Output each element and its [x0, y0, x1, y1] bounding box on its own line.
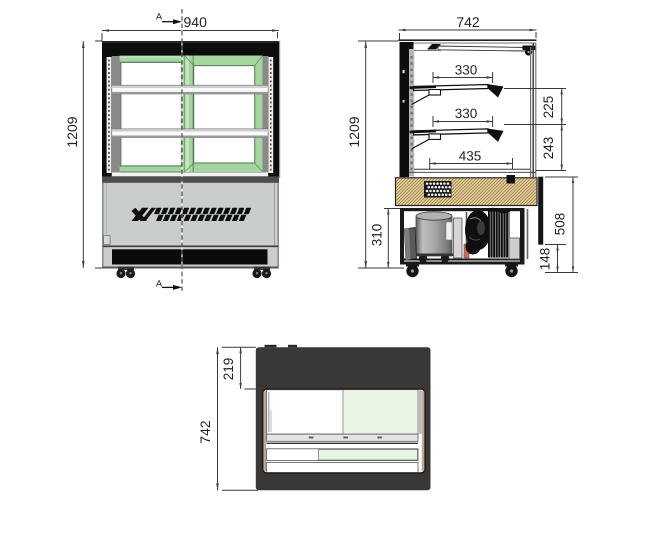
svg-text:330: 330: [455, 106, 478, 121]
svg-text:A: A: [156, 278, 162, 288]
svg-text:219: 219: [221, 358, 236, 381]
svg-text:225: 225: [541, 96, 556, 119]
svg-text:243: 243: [541, 137, 556, 160]
svg-text:940: 940: [183, 14, 207, 30]
svg-text:508: 508: [553, 213, 568, 236]
svg-text:148: 148: [538, 248, 553, 271]
svg-text:A: A: [156, 11, 162, 21]
svg-text:435: 435: [459, 148, 482, 163]
svg-text:1209: 1209: [346, 116, 362, 147]
svg-text:742: 742: [197, 420, 213, 444]
svg-text:310: 310: [370, 224, 385, 247]
svg-text:742: 742: [456, 14, 480, 30]
svg-text:1209: 1209: [64, 116, 80, 147]
svg-text:330: 330: [455, 62, 478, 77]
